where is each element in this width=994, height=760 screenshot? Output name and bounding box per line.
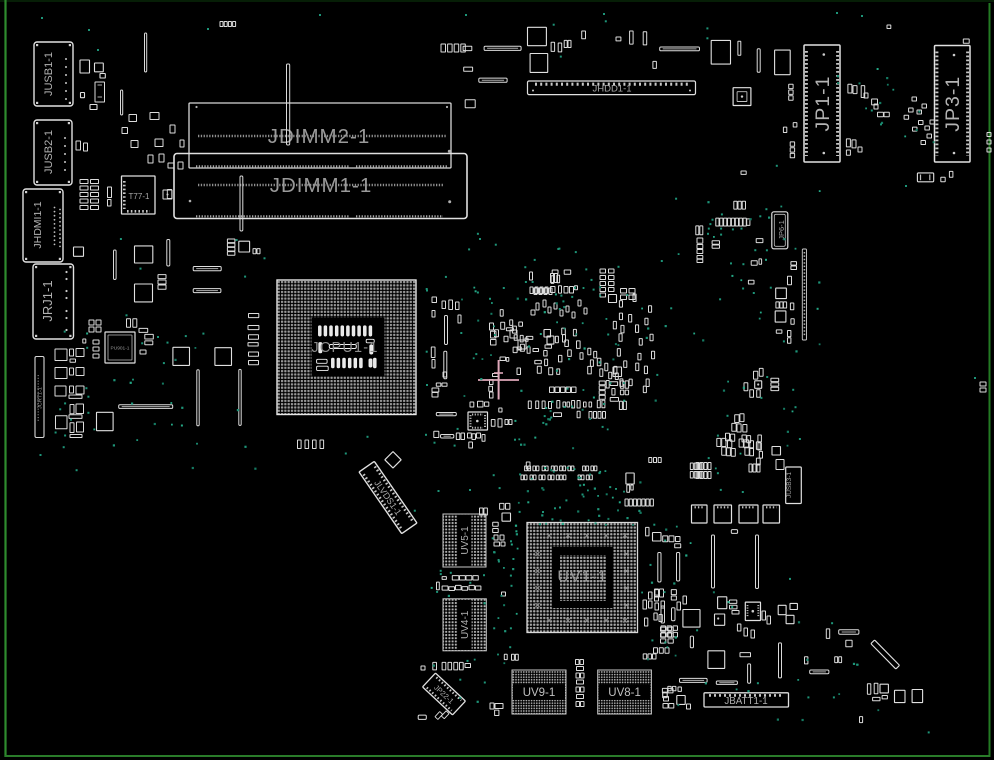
svg-text:PU901-1: PU901-1 [111,346,130,352]
svg-text:UV8-1: UV8-1 [608,687,641,699]
svg-text:JHDMI1-1: JHDMI1-1 [32,201,44,248]
svg-text:JP6-1: JP6-1 [777,220,786,240]
svg-text:T77-1: T77-1 [129,192,150,201]
svg-text:JP1-1: JP1-1 [812,76,834,132]
svg-text:JUSB1-1: JUSB1-1 [43,52,55,96]
svg-text:UV9-1: UV9-1 [523,687,556,699]
svg-text:UV5-1: UV5-1 [460,526,471,555]
svg-text:JHDD1-1: JHDD1-1 [592,84,631,95]
svg-text:JRJ1-1: JRJ1-1 [40,280,55,321]
svg-text:JUSB3-1: JUSB3-1 [786,472,793,498]
svg-text:UV1-1: UV1-1 [557,569,607,586]
svg-text:JBATT1-1: JBATT1-1 [724,696,767,707]
svg-text:JUSB2-1: JUSB2-1 [43,130,55,174]
svg-text:UV4-1: UV4-1 [460,610,471,639]
svg-text:JP3-1: JP3-1 [942,76,964,132]
svg-text:JCPU1-1: JCPU1-1 [311,340,378,356]
